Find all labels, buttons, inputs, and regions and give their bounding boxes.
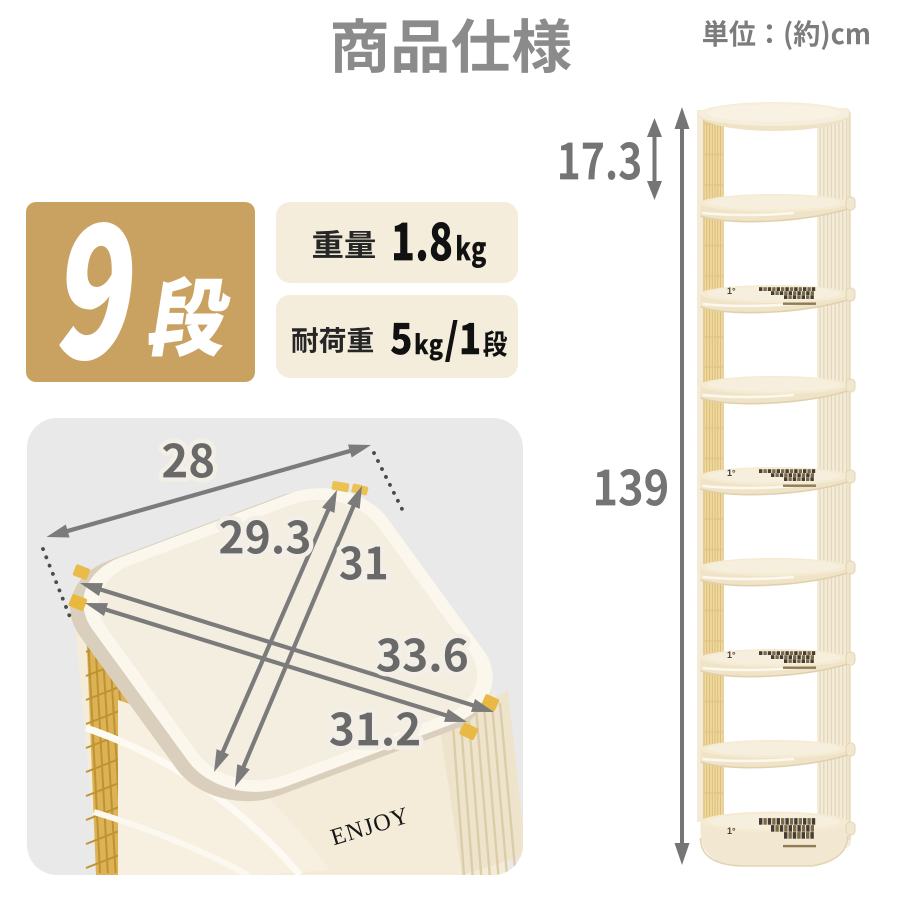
svg-text:1°: 1°: [727, 650, 736, 660]
svg-text:1°: 1°: [727, 468, 736, 478]
svg-text:1°: 1°: [727, 286, 736, 296]
svg-text:1°: 1°: [727, 826, 736, 836]
